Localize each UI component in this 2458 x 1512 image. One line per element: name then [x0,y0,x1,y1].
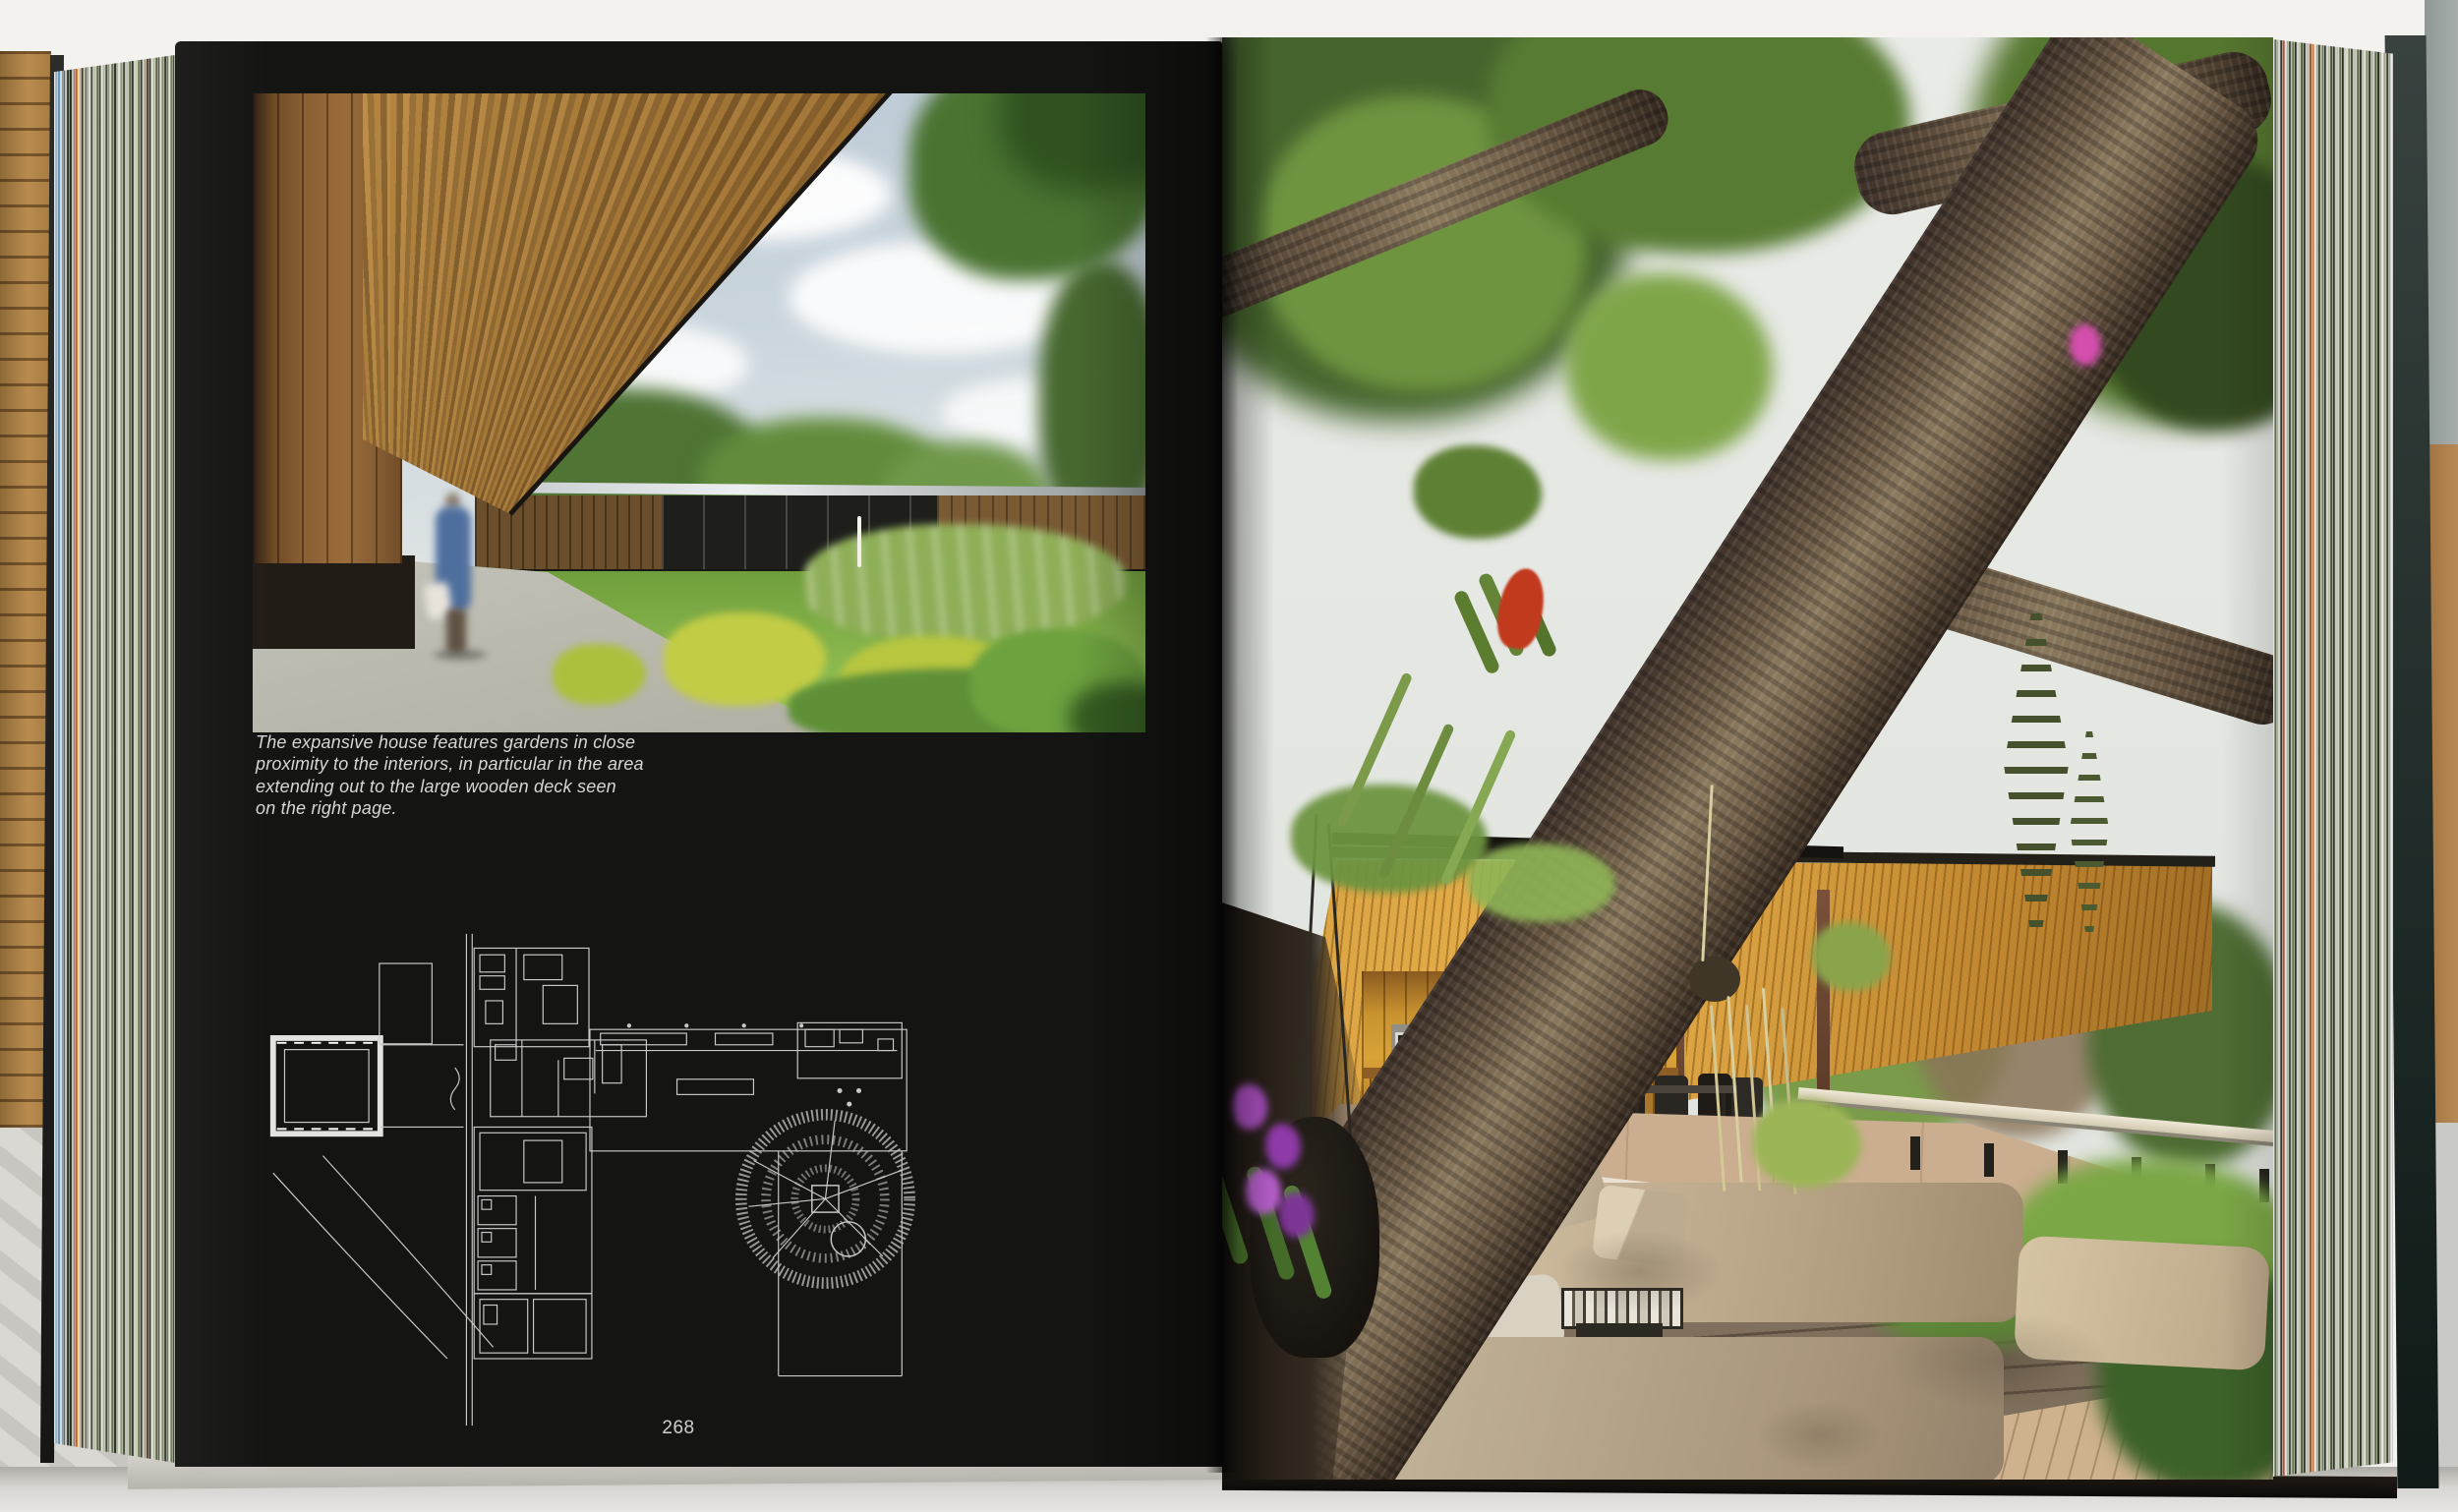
fore-edge-pages-right [2273,39,2393,1477]
fore-edge-pages-left [54,55,175,1463]
background-stone-strip [2425,0,2458,444]
right-page-photo-terrace [1222,37,2273,1480]
book-spread-photograph: The expansive house features gardens in … [0,0,2458,1512]
left-page-gutter-shading [175,41,1222,1467]
left-page: The expansive house features gardens in … [175,41,1222,1467]
right-page-gutter-shading [1222,37,2273,1480]
book-gutter-shadow [1205,37,1239,1473]
